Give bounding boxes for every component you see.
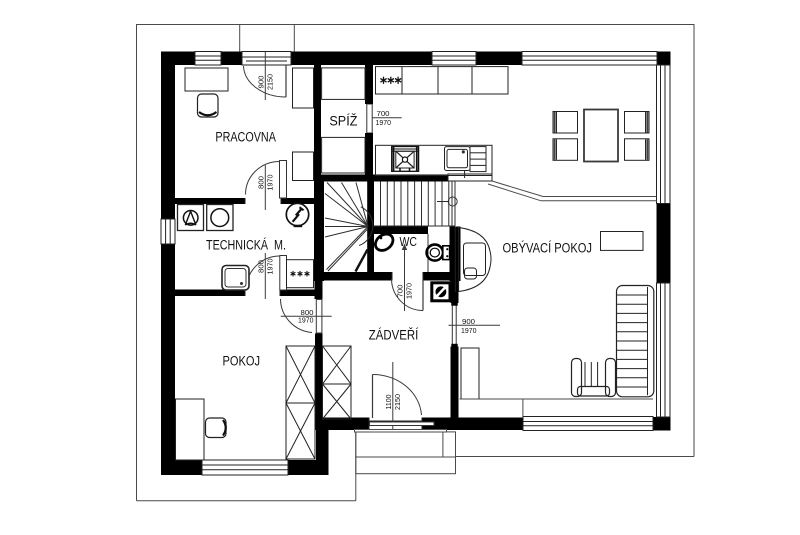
svg-text:POKOJ: POKOJ xyxy=(223,354,261,369)
svg-text:1970: 1970 xyxy=(376,118,392,127)
svg-text:SPÍŽ: SPÍŽ xyxy=(329,114,357,129)
svg-text:800: 800 xyxy=(256,176,265,189)
svg-text:1970: 1970 xyxy=(265,175,274,191)
svg-text:1100: 1100 xyxy=(384,395,393,410)
svg-text:1970: 1970 xyxy=(461,326,477,335)
svg-text:1970: 1970 xyxy=(298,315,314,324)
svg-text:OBÝVACÍ POKOJ: OBÝVACÍ POKOJ xyxy=(503,241,593,256)
svg-text:800: 800 xyxy=(256,260,265,273)
svg-text:1970: 1970 xyxy=(265,259,274,275)
svg-text:2150: 2150 xyxy=(393,394,402,410)
svg-text:ZÁDVEŘÍ: ZÁDVEŘÍ xyxy=(369,328,419,343)
svg-text:900: 900 xyxy=(462,317,475,326)
svg-text:700: 700 xyxy=(396,285,405,298)
svg-text:WC: WC xyxy=(400,235,418,249)
svg-text:PRACOVNA: PRACOVNA xyxy=(215,129,276,144)
svg-text:TECHNICKÁ M.: TECHNICKÁ M. xyxy=(206,238,286,253)
svg-text:2150: 2150 xyxy=(265,74,274,90)
svg-text:700: 700 xyxy=(377,109,390,118)
svg-text:1970: 1970 xyxy=(405,283,414,299)
svg-text:900: 900 xyxy=(256,76,265,89)
